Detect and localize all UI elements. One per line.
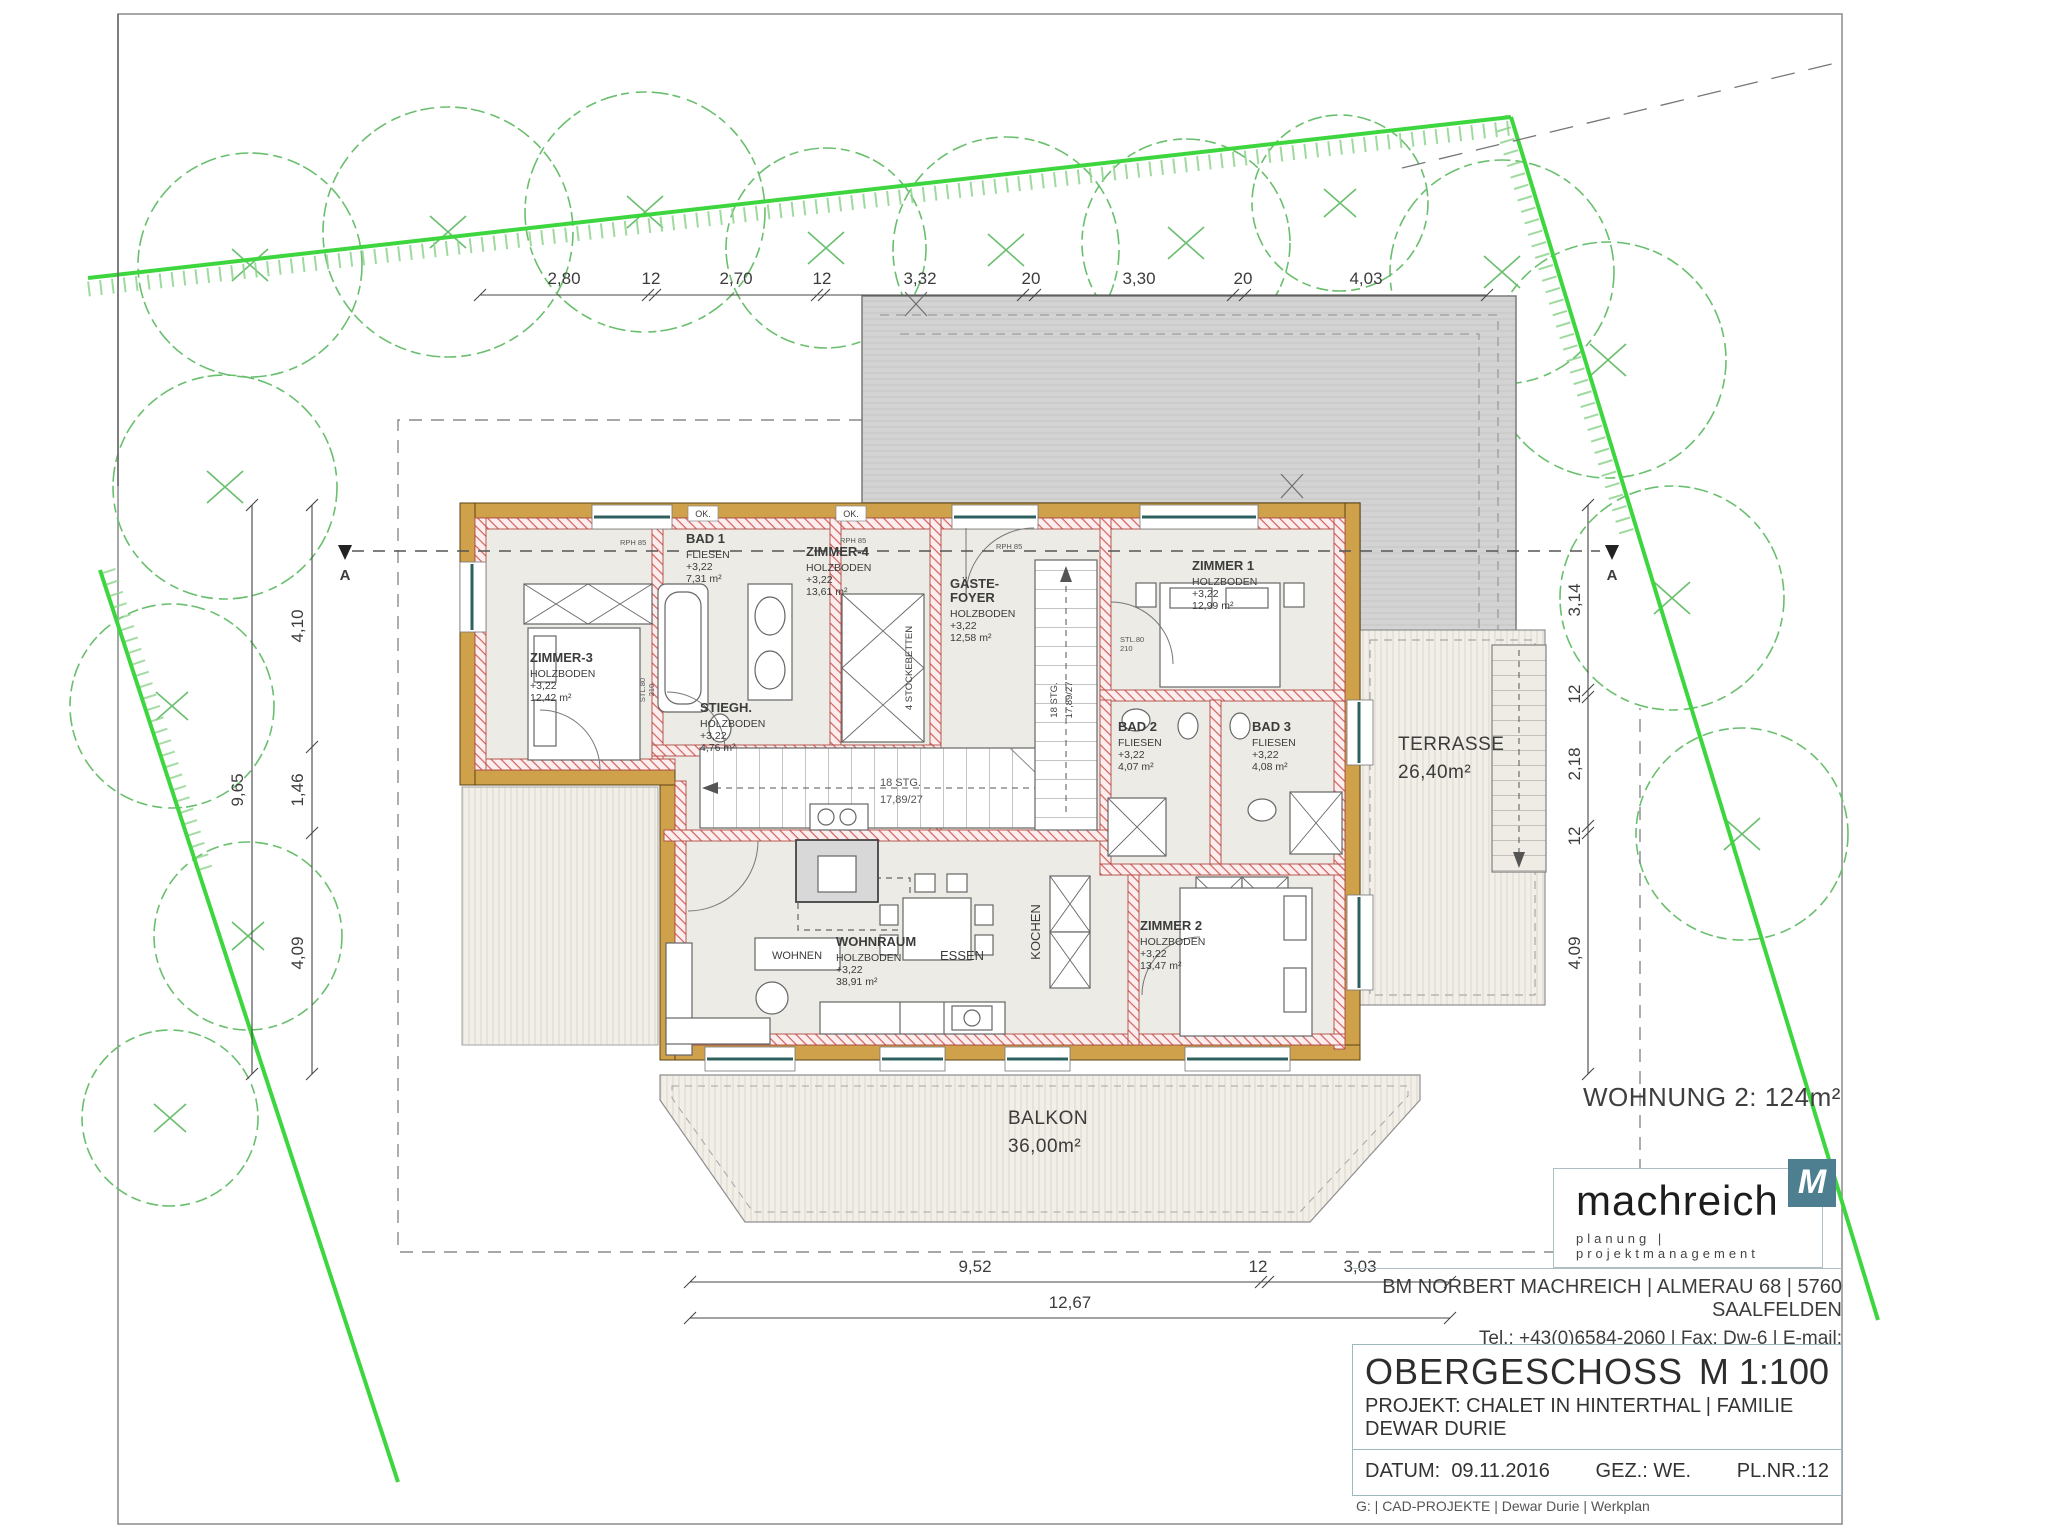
boundary-line-east bbox=[1511, 117, 1878, 1320]
svg-text:WOHNRAUM: WOHNRAUM bbox=[836, 934, 916, 949]
dim-label: 12 bbox=[1565, 685, 1584, 704]
svg-text:+3,22: +3,22 bbox=[1192, 588, 1219, 600]
stair-count: 18 STG. bbox=[1049, 682, 1060, 717]
logo-m-icon: M bbox=[1788, 1159, 1836, 1207]
rph-label: RPH 85 bbox=[620, 538, 646, 547]
tree-icon bbox=[525, 92, 765, 332]
door-type-label: STL.80 bbox=[1120, 635, 1144, 644]
tree-icon bbox=[82, 1030, 258, 1206]
company-address: BM NORBERT MACHREICH | ALMERAU 68 | 5760… bbox=[1352, 1276, 1842, 1322]
dim-label: 20 bbox=[1234, 269, 1253, 288]
rph-label: RPH 85 bbox=[996, 542, 1022, 551]
svg-text:+3,22: +3,22 bbox=[806, 574, 833, 586]
stair-count: 18 STG. bbox=[880, 777, 921, 789]
svg-text:13,47 m²: 13,47 m² bbox=[1140, 960, 1182, 972]
plan-scale: M 1:100 bbox=[1699, 1351, 1829, 1393]
svg-text:+3,22: +3,22 bbox=[950, 620, 977, 632]
tree-icon bbox=[1490, 242, 1726, 478]
svg-text:HOLZBODEN: HOLZBODEN bbox=[1140, 936, 1205, 948]
svg-text:+3,22: +3,22 bbox=[530, 680, 557, 692]
essen-label: ESSEN bbox=[940, 948, 984, 963]
svg-text:HOLZBODEN: HOLZBODEN bbox=[806, 562, 871, 574]
svg-text:+3,22: +3,22 bbox=[700, 730, 727, 742]
svg-text:12,42 m²: 12,42 m² bbox=[530, 692, 572, 704]
boundary-line-west bbox=[100, 570, 398, 1482]
svg-text:FLIESEN: FLIESEN bbox=[1118, 737, 1162, 749]
company-tagline: planung | projektmanagement bbox=[1576, 1231, 1822, 1261]
dim-label: 3,14 bbox=[1565, 583, 1584, 616]
dim-label: 4,09 bbox=[1565, 936, 1584, 969]
svg-text:38,91 m²: 38,91 m² bbox=[836, 976, 878, 988]
dim-label: 4,09 bbox=[288, 936, 307, 969]
svg-text:+3,22: +3,22 bbox=[1252, 749, 1279, 761]
sink bbox=[1248, 799, 1276, 821]
balkon-area: 36,00m² bbox=[1008, 1136, 1081, 1157]
terrasse-area: 26,40m² bbox=[1398, 762, 1471, 783]
tree-icon bbox=[154, 842, 342, 1030]
ok-label: OK. bbox=[843, 509, 859, 519]
section-label: A bbox=[1607, 567, 1618, 584]
svg-text:HOLZBODEN: HOLZBODEN bbox=[1192, 576, 1257, 588]
svg-text:+3,22: +3,22 bbox=[686, 561, 713, 573]
dim-label: 9,52 bbox=[958, 1257, 991, 1276]
side-deck bbox=[462, 787, 658, 1045]
tree-icon bbox=[1560, 486, 1784, 710]
svg-text:HOLZBODEN: HOLZBODEN bbox=[950, 608, 1015, 620]
date-field: DATUM: 09.11.2016 bbox=[1365, 1460, 1550, 1483]
svg-text:GÄSTE-: GÄSTE- bbox=[950, 576, 999, 591]
boundary-line-north bbox=[88, 117, 1511, 278]
dim-label: 12 bbox=[1565, 827, 1584, 846]
plan-number-field: PL.NR.:12 bbox=[1737, 1460, 1829, 1483]
svg-text:BAD 1: BAD 1 bbox=[686, 531, 725, 546]
svg-text:+3,22: +3,22 bbox=[836, 964, 863, 976]
svg-text:HOLZBODEN: HOLZBODEN bbox=[836, 952, 901, 964]
company-logo: machreich planung | projektmanagement M bbox=[1553, 1168, 1823, 1268]
door-width-label: 210 bbox=[1120, 644, 1133, 653]
company-name: machreich bbox=[1576, 1177, 1779, 1225]
svg-text:12,58 m²: 12,58 m² bbox=[950, 632, 992, 644]
svg-text:ZIMMER-3: ZIMMER-3 bbox=[530, 650, 593, 665]
rph-label: RPH 85 bbox=[840, 536, 866, 545]
drawn-by-field: GEZ.: WE. bbox=[1596, 1460, 1692, 1483]
wc bbox=[1178, 713, 1198, 739]
wohnen-label: WOHNEN bbox=[772, 950, 822, 962]
dim-label: 3,03 bbox=[1343, 1257, 1376, 1276]
section-marker-icon bbox=[1605, 545, 1619, 560]
wardrobe bbox=[524, 584, 652, 624]
tree-icon bbox=[113, 375, 337, 599]
svg-text:HOLZBODEN: HOLZBODEN bbox=[700, 718, 765, 730]
bunkbeds-label: 4 STOCKEBETTEN bbox=[904, 626, 915, 710]
stair-riserun: 17,89/27 bbox=[880, 794, 923, 806]
svg-text:13,61 m²: 13,61 m² bbox=[806, 586, 848, 598]
svg-text:BAD 2: BAD 2 bbox=[1118, 719, 1157, 734]
dim-label: 2,70 bbox=[719, 269, 752, 288]
kitchen-sink bbox=[964, 1010, 980, 1026]
svg-text:+3,22: +3,22 bbox=[1118, 749, 1145, 761]
kochen-label: KOCHEN bbox=[1028, 904, 1043, 960]
dim-label: 4,03 bbox=[1349, 269, 1382, 288]
dim-label: 3,32 bbox=[903, 269, 936, 288]
tree-icon bbox=[1636, 728, 1848, 940]
door-width-label: 210 bbox=[647, 684, 656, 697]
svg-text:ZIMMER 2: ZIMMER 2 bbox=[1140, 918, 1202, 933]
title-block: OBERGESCHOSS M 1:100 PROJEKT: CHALET IN … bbox=[1352, 1344, 1842, 1496]
dim-label: 2,80 bbox=[547, 269, 580, 288]
terrasse-label: TERRASSE bbox=[1398, 734, 1504, 755]
svg-text:4,08 m²: 4,08 m² bbox=[1252, 761, 1288, 773]
dim-label: 12 bbox=[813, 269, 832, 288]
svg-text:4,76 m²: 4,76 m² bbox=[700, 742, 736, 754]
svg-text:STIEGH.: STIEGH. bbox=[700, 700, 752, 715]
stair-riserun: 17,89/27 bbox=[1064, 682, 1075, 719]
svg-text:FLIESEN: FLIESEN bbox=[1252, 737, 1296, 749]
dim-label: 1,46 bbox=[288, 773, 307, 806]
svg-text:ZIMMER-4: ZIMMER-4 bbox=[806, 544, 870, 559]
coffee-table bbox=[756, 982, 788, 1014]
svg-text:ZIMMER 1: ZIMMER 1 bbox=[1192, 558, 1254, 573]
svg-text:+3,22: +3,22 bbox=[1140, 948, 1167, 960]
section-label: A bbox=[340, 567, 351, 584]
drawing-sheet: A A 2,80 12 2,70 bbox=[0, 0, 2048, 1536]
dim-label: 3,30 bbox=[1122, 269, 1155, 288]
project-line: PROJEKT: CHALET IN HINTERTHAL | FAMILIE … bbox=[1353, 1393, 1841, 1449]
dim-ticks-left bbox=[246, 499, 318, 1080]
ok-label: OK. bbox=[695, 509, 711, 519]
neighbor-line bbox=[1402, 62, 1840, 168]
svg-text:FOYER: FOYER bbox=[950, 590, 995, 605]
dim-label: 12 bbox=[642, 269, 661, 288]
svg-text:BAD 3: BAD 3 bbox=[1252, 719, 1291, 734]
dim-label: 12 bbox=[1249, 1257, 1268, 1276]
svg-text:FLIESEN: FLIESEN bbox=[686, 549, 730, 561]
apartment-area-label: WOHNUNG 2: 124m² bbox=[1583, 1082, 1841, 1113]
svg-text:4,07 m²: 4,07 m² bbox=[1118, 761, 1154, 773]
dim-label: 12,67 bbox=[1049, 1293, 1092, 1312]
tree-icon bbox=[323, 107, 573, 357]
file-path-note: G: | CAD-PROJEKTE | Dewar Durie | Werkpl… bbox=[1356, 1498, 1650, 1514]
dim-label: 20 bbox=[1022, 269, 1041, 288]
dim-label: 2,18 bbox=[1565, 747, 1584, 780]
balkon-label: BALKON bbox=[1008, 1108, 1088, 1129]
svg-text:12,99 m²: 12,99 m² bbox=[1192, 600, 1234, 612]
wc bbox=[1230, 713, 1250, 739]
section-marker-icon bbox=[338, 545, 352, 560]
door-type-label: STL.80 bbox=[638, 678, 647, 702]
plan-title: OBERGESCHOSS bbox=[1365, 1351, 1683, 1393]
svg-text:HOLZBODEN: HOLZBODEN bbox=[530, 668, 595, 680]
svg-text:7,31 m²: 7,31 m² bbox=[686, 573, 722, 585]
dim-label: 9,65 bbox=[228, 773, 247, 806]
terrasse bbox=[1360, 630, 1546, 1005]
dim-label: 4,10 bbox=[288, 609, 307, 642]
divider bbox=[1352, 1268, 1842, 1269]
